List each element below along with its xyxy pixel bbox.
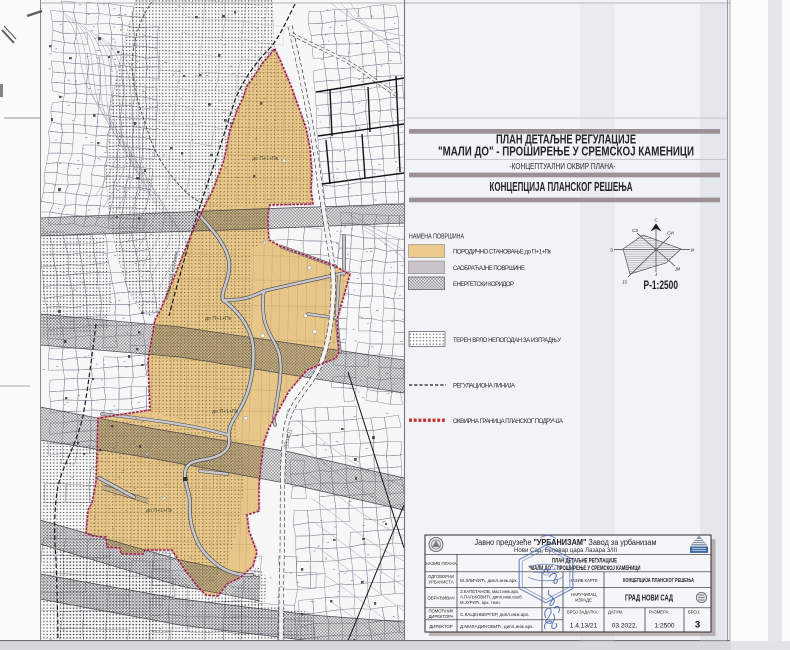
svg-text:ГРАД НОВИ САД: ГРАД НОВИ САД — [625, 594, 673, 603]
svg-text:до П+1+Пк: до П+1+Пк — [205, 316, 232, 322]
svg-text:БРОЈ ЗАДАТКА:: БРОЈ ЗАДАТКА: — [567, 610, 599, 615]
svg-text:до П+1+Пк: до П+1+Пк — [212, 409, 239, 415]
svg-text:М.ЈУРИЋ, арх. техн.: М.ЈУРИЋ, арх. техн. — [460, 600, 501, 605]
svg-text:ОДГОВОРНИ: ОДГОВОРНИ — [428, 574, 454, 579]
svg-text:З.КАПЕТАНОВ, маст.инж.арх.: З.КАПЕТАНОВ, маст.инж.арх. — [460, 589, 519, 594]
svg-text:И: И — [691, 248, 694, 253]
svg-text:БРОЈ:: БРОЈ: — [688, 610, 700, 615]
svg-text:НАРУЧИЛАЦ: НАРУЧИЛАЦ — [571, 592, 598, 597]
svg-text:Нови Сад, Булевар цара Лазара: Нови Сад, Булевар цара Лазара 3/III — [514, 547, 617, 554]
svg-text:ДИРЕКТОРА: ДИРЕКТОРА — [429, 614, 454, 619]
svg-text:до П+1+Пк: до П+1+Пк — [252, 156, 279, 162]
svg-text:РАЗМЕРА:: РАЗМЕРА: — [649, 610, 670, 615]
svg-text:ЈЗ: ЈЗ — [622, 280, 627, 285]
svg-text:1.4.13/21: 1.4.13/21 — [570, 622, 598, 629]
svg-text:А.ПАЉКОВИЋ, дипл.инж.саоб.: А.ПАЉКОВИЋ, дипл.инж.саоб. — [460, 595, 523, 600]
svg-text:НАМЕНА ПОВРШИНА: НАМЕНА ПОВРШИНА — [409, 232, 464, 241]
svg-text:КОНЦЕПЦИЈА ПЛАНСКОГ РЕШЕЊА: КОНЦЕПЦИЈА ПЛАНСКОГ РЕШЕЊА — [490, 180, 633, 194]
svg-text:ТЕРЕН ВРЛО НЕПОГОДАН ЗА ИЗГРАД: ТЕРЕН ВРЛО НЕПОГОДАН ЗА ИЗГРАДЊУ — [453, 338, 561, 344]
svg-text:"МАЛИ ДО" - ПРОШИРЕЊЕ У СРЕМСК: "МАЛИ ДО" - ПРОШИРЕЊЕ У СРЕМСКОЈ КАМЕНИЦ… — [438, 144, 694, 159]
svg-text:ЕНЕРГЕТСКИ КОРИДОР: ЕНЕРГЕТСКИ КОРИДОР — [453, 282, 514, 288]
svg-text:М.ЗЛИЧИЋ, дипл.инж.арх.: М.ЗЛИЧИЋ, дипл.инж.арх. — [460, 578, 518, 583]
svg-text:СЗ: СЗ — [632, 228, 638, 233]
svg-text:З: З — [610, 248, 613, 253]
svg-text:Ј: Ј — [655, 272, 657, 277]
svg-text:03.2022.: 03.2022. — [612, 622, 638, 629]
svg-text:СИ: СИ — [667, 231, 674, 236]
svg-text:ИЗРАДЕ: ИЗРАДЕ — [575, 598, 592, 603]
svg-text:Р-1:2500: Р-1:2500 — [644, 278, 679, 292]
svg-text:ДИРЕКТОР: ДИРЕКТОР — [429, 624, 452, 629]
svg-text:НАЗИВ ПЛАНА: НАЗИВ ПЛАНА — [425, 561, 456, 566]
svg-text:ОБРАЂИВАЧ: ОБРАЂИВАЧ — [427, 596, 454, 601]
svg-text:С.КАЦЕНБЕРГЕР, дипл.инж.арх.: С.КАЦЕНБЕРГЕР, дипл.инж.арх. — [460, 612, 529, 617]
svg-text:Д.МИЛАДИНОВИЋ, дипл.инж.арх.: Д.МИЛАДИНОВИЋ, дипл.инж.арх. — [460, 624, 534, 629]
svg-text:-КОНЦЕПТУАЛНИ ОКВИР ПЛАНА-: -КОНЦЕПТУАЛНИ ОКВИР ПЛАНА- — [510, 162, 616, 171]
svg-text:РЕГУЛАЦИОНА ЛИНИЈА: РЕГУЛАЦИОНА ЛИНИЈА — [453, 384, 515, 390]
svg-text:Јавно предузеће "УРБАНИЗАМ" За: Јавно предузеће "УРБАНИЗАМ" Завод за урб… — [475, 538, 657, 547]
svg-text:КОНЦЕПЦИЈА ПЛАНСКОГ РЕШЕЊА: КОНЦЕПЦИЈА ПЛАНСКОГ РЕШЕЊА — [623, 578, 694, 584]
svg-text:ПОМОЋНИК: ПОМОЋНИК — [428, 609, 454, 614]
svg-text:ПОРОДИЧНО СТАНОВАЊЕ до П+1+Пк: ПОРОДИЧНО СТАНОВАЊЕ до П+1+Пк — [453, 250, 551, 256]
svg-text:ЈИ: ЈИ — [675, 267, 681, 272]
svg-text:НАЗИВ КАРТЕ: НАЗИВ КАРТЕ — [569, 578, 598, 583]
svg-text:УРБАНИСТА: УРБАНИСТА — [428, 580, 453, 585]
svg-text:1:2500: 1:2500 — [654, 622, 675, 629]
svg-text:ПЛАН ДЕТАЉНЕ РЕГУЛАЦИЈЕ: ПЛАН ДЕТАЉНЕ РЕГУЛАЦИЈЕ — [552, 558, 617, 565]
svg-text:до П+1+Пк: до П+1+Пк — [146, 508, 173, 514]
svg-text:3: 3 — [695, 620, 700, 631]
svg-text:ОКВИРНА ГРАНИЦА ПЛАНСКОГ ПОДРУ: ОКВИРНА ГРАНИЦА ПЛАНСКОГ ПОДРУЧЈА — [453, 419, 563, 425]
svg-text:ДАТУМ:: ДАТУМ: — [608, 610, 623, 615]
svg-text:САОБРАЋАЈНЕ ПОВРШИНЕ: САОБРАЋАЈНЕ ПОВРШИНЕ — [453, 266, 525, 272]
